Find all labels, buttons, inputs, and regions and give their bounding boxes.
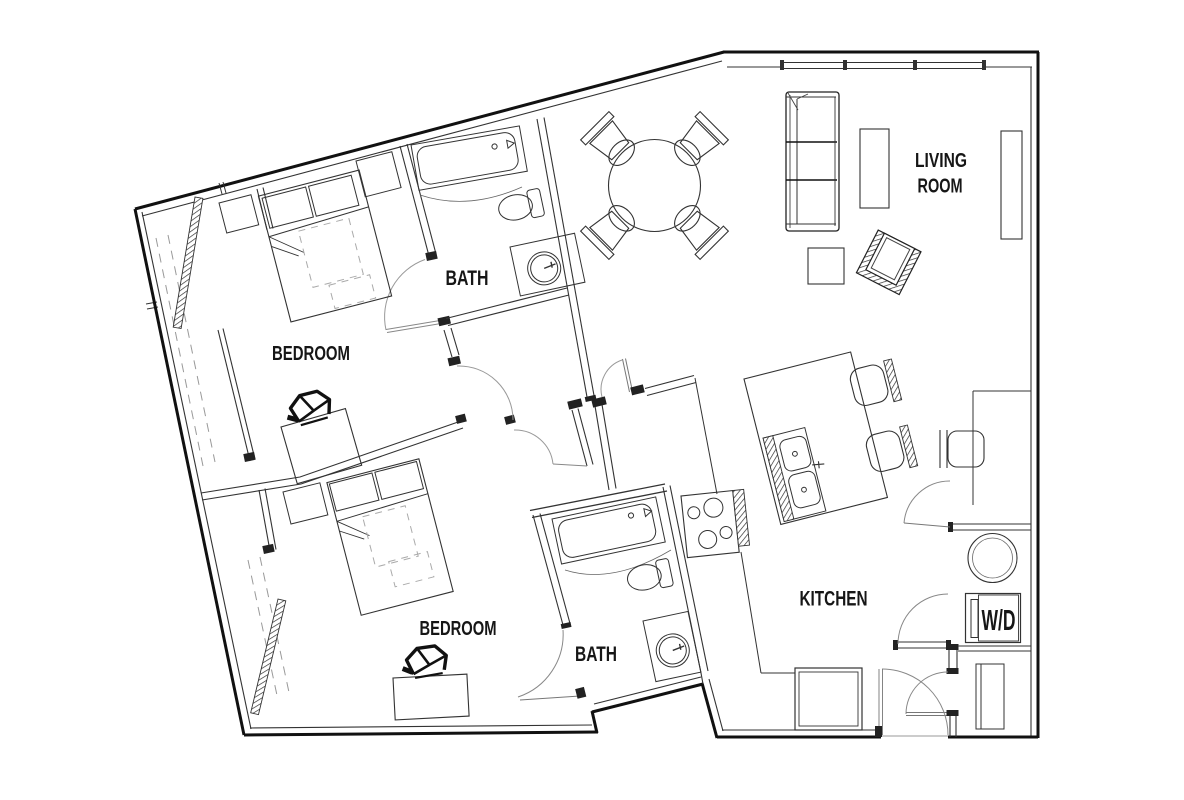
svg-text:KITCHEN: KITCHEN	[800, 587, 868, 611]
svg-text:ROOM: ROOM	[918, 176, 963, 198]
svg-text:BEDROOM: BEDROOM	[420, 618, 497, 640]
svg-text:BATH: BATH	[575, 643, 617, 666]
svg-text:W/D: W/D	[982, 605, 1016, 637]
svg-text:LIVING: LIVING	[915, 150, 967, 172]
svg-text:BATH: BATH	[446, 267, 489, 290]
svg-text:BEDROOM: BEDROOM	[272, 343, 350, 365]
